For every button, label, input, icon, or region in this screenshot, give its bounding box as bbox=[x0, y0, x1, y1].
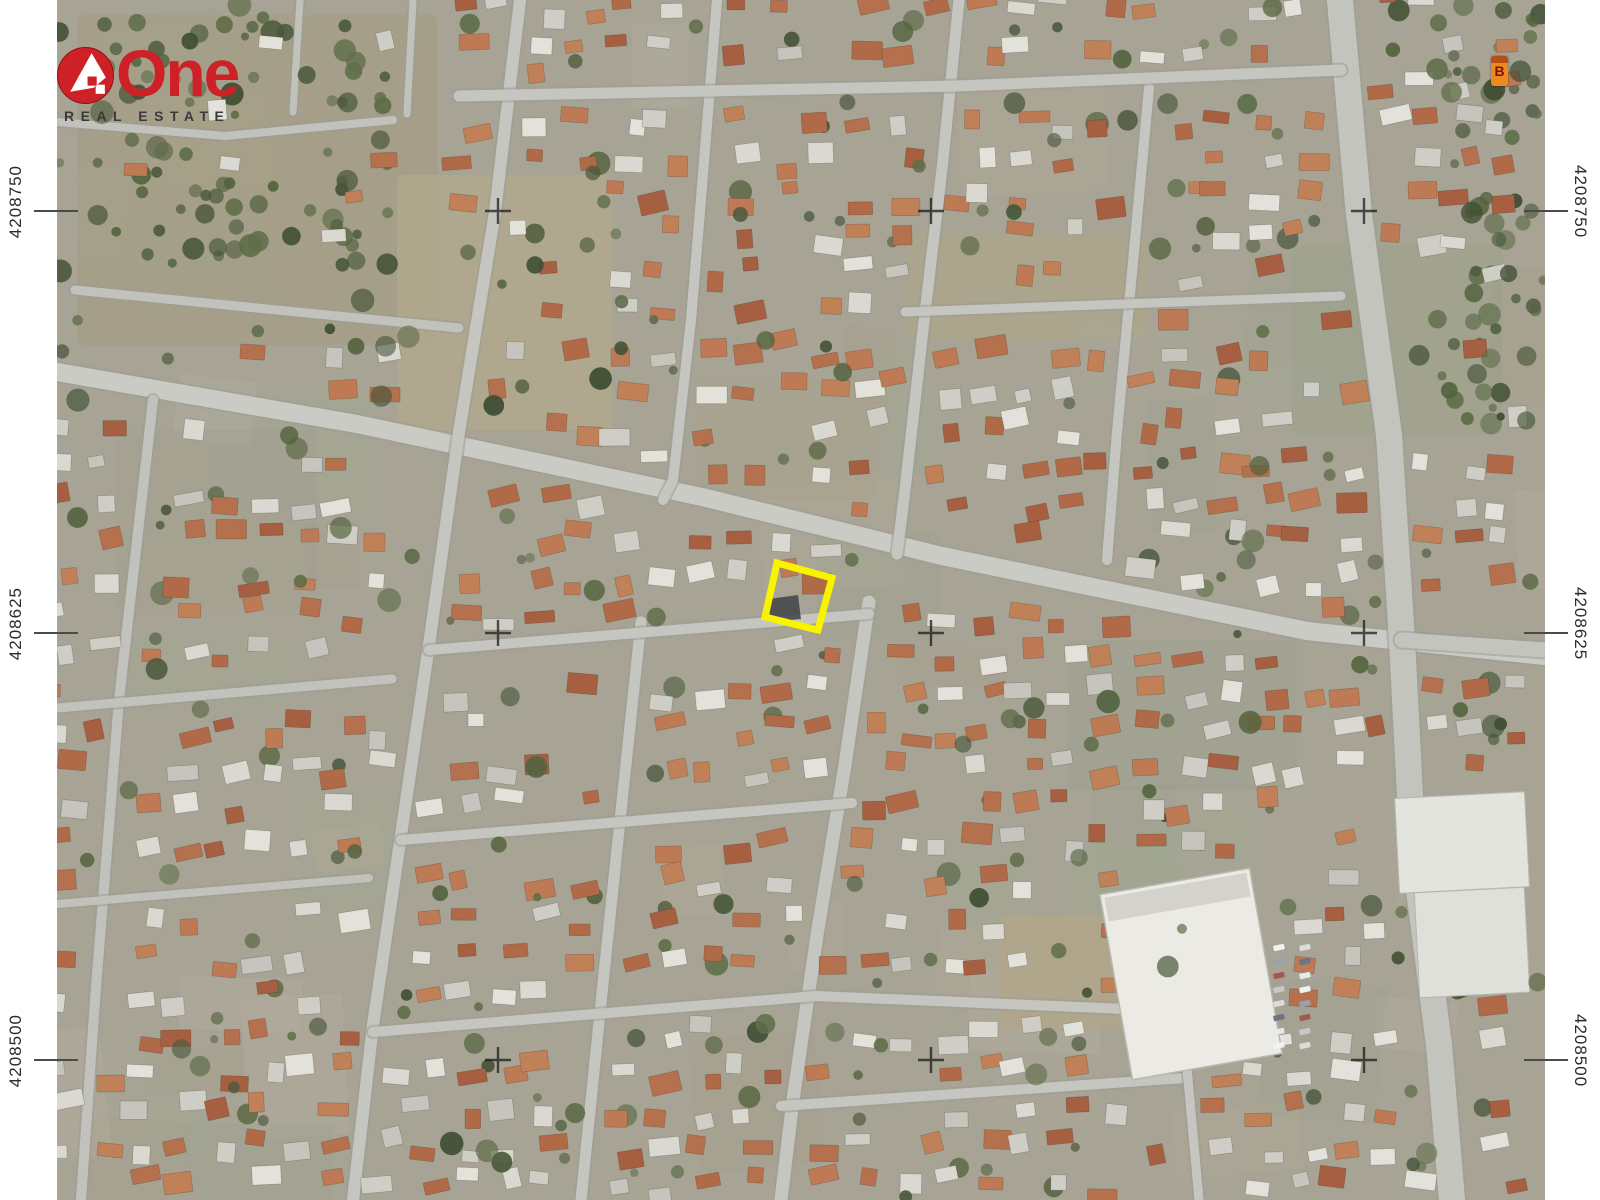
axis-tick-left-top bbox=[34, 210, 78, 212]
satellite-imagery bbox=[57, 0, 1545, 1200]
one-real-estate-logo: One REAL ESTATE bbox=[57, 46, 287, 130]
northing-label-right-middle: 4208625 bbox=[1570, 587, 1590, 660]
marker-b: B bbox=[1491, 56, 1508, 86]
axis-tick-left-middle bbox=[34, 632, 78, 634]
logo-brand-text: One bbox=[116, 43, 238, 103]
axis-tick-right-middle bbox=[1524, 632, 1568, 634]
axis-tick-right-bottom bbox=[1524, 1059, 1568, 1061]
northing-label-right-top: 4208750 bbox=[1570, 165, 1590, 238]
northing-label-left-middle: 4208625 bbox=[6, 587, 26, 660]
axis-tick-right-top bbox=[1524, 210, 1568, 212]
listing-map-page: One REAL ESTATE B 4208750 4208625 420850… bbox=[0, 0, 1600, 1200]
northing-label-left-bottom: 4208500 bbox=[6, 1014, 26, 1087]
one-logo-mark-icon bbox=[57, 47, 114, 104]
axis-tick-left-bottom bbox=[34, 1059, 78, 1061]
northing-label-left-top: 4208750 bbox=[6, 165, 26, 238]
logo-tagline: REAL ESTATE bbox=[64, 108, 230, 124]
satellite-map: One REAL ESTATE B bbox=[57, 0, 1545, 1200]
northing-label-right-bottom: 4208500 bbox=[1570, 1014, 1590, 1087]
